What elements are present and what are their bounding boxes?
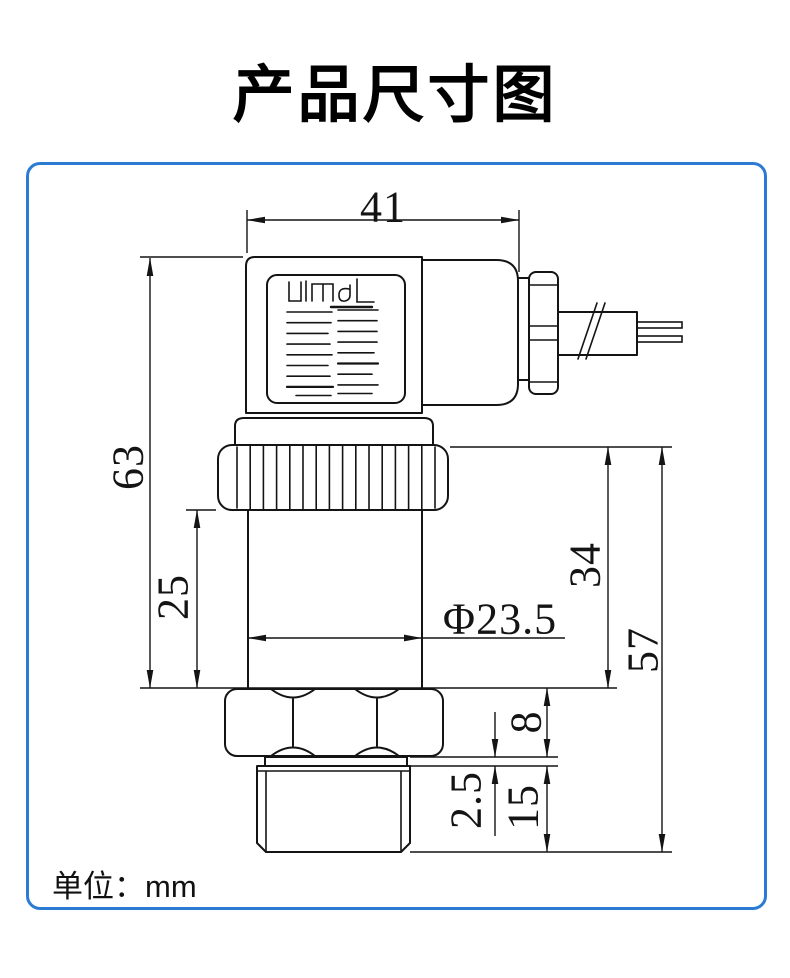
cable [558, 312, 637, 355]
gland-nut [529, 272, 558, 394]
dim-25-label: 25 [149, 574, 198, 620]
gland-neck [518, 278, 529, 380]
wire-bottom [637, 336, 682, 342]
dim-2-5-label: 2.5 [442, 771, 491, 829]
wire-top [637, 322, 682, 328]
dim-41-label: 41 [360, 183, 406, 232]
cable-gland [518, 272, 682, 394]
knurled-nut [218, 445, 448, 510]
dim-15-label: 15 [499, 784, 548, 830]
hex-nut-outline [225, 689, 443, 756]
dim-57-label: 57 [619, 627, 668, 673]
collar [235, 418, 433, 447]
housing [218, 418, 448, 688]
thread-port [257, 757, 410, 852]
dimension-drawing: 41 63 25 Φ23.5 34 57 8 2.5 15 单位：mm [0, 0, 790, 978]
washer [265, 757, 407, 766]
dim-diameter-label: Φ23.5 [443, 595, 557, 644]
sensor-body-cylinder [248, 510, 422, 688]
dim-34-label: 34 [561, 542, 610, 588]
dim-8-label: 8 [502, 711, 551, 734]
dim-diameter-right-arrow [404, 635, 422, 642]
connector-label-plate [267, 275, 405, 403]
hex-nut [225, 689, 443, 756]
connector-right-section [422, 260, 518, 405]
thread-stub [257, 766, 410, 852]
din-connector-head [246, 257, 518, 413]
dim-63-label: 63 [104, 444, 153, 490]
unit-note: 单位：mm [52, 869, 197, 904]
